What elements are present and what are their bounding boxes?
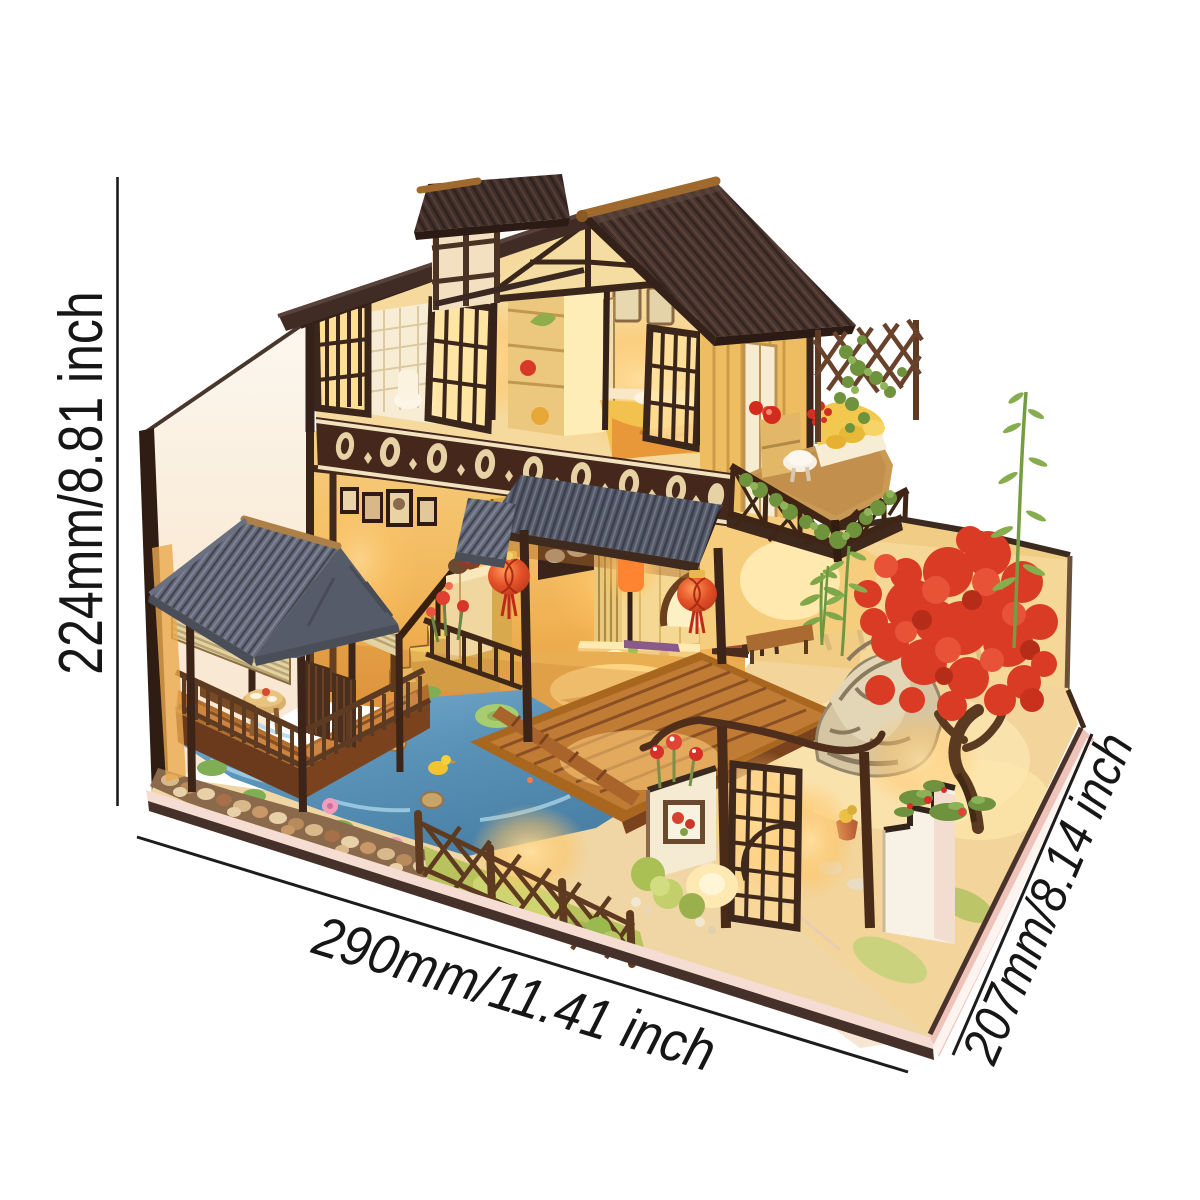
svg-text:224mm/8.81 inch: 224mm/8.81 inch <box>46 291 116 674</box>
